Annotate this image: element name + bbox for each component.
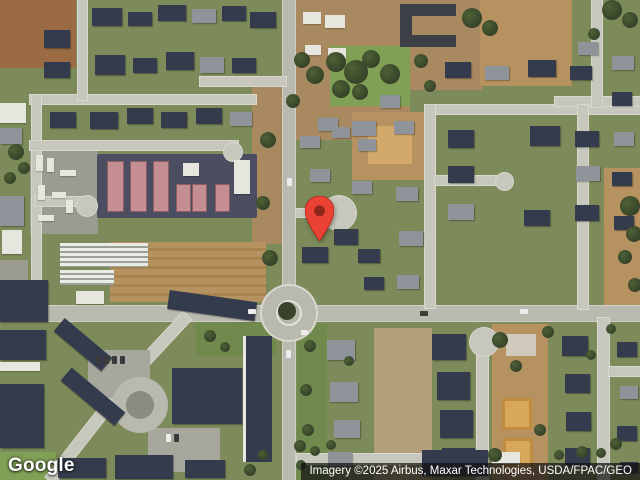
house-gray-roof [614,132,634,146]
tree [260,132,276,148]
house-dark-roof [364,277,384,290]
house-dark-roof [530,126,560,146]
location-marker-pin[interactable] [305,196,334,241]
tree [302,424,314,436]
white-building [38,215,54,221]
house-dark-roof [196,108,222,124]
house-gray-roof [620,386,638,399]
house-dark-roof [0,384,44,448]
white-building [47,158,54,172]
house-gray-roof [612,56,634,70]
tree [256,196,270,210]
car [248,309,256,314]
tree [482,20,498,36]
tree [588,28,600,40]
cul-de-sac [224,143,242,161]
white-building [76,291,104,304]
house-dark-roof [575,131,599,147]
house-gray-roof [394,121,414,134]
car [420,311,428,316]
tree [244,464,256,476]
white-building [66,200,73,213]
tree [492,332,508,348]
tree [352,84,368,100]
street [200,77,286,86]
tree [576,446,588,458]
tree [618,250,632,264]
storage-building [108,162,123,211]
house-dark-roof [445,62,471,78]
house-dark-roof [358,249,380,263]
house-dark-roof [44,62,70,78]
house-dark-roof [133,58,157,73]
white-building [0,103,26,123]
house-dark-roof [222,6,246,21]
tree [4,172,16,184]
tree [462,8,482,28]
white-building [325,15,345,28]
house-dark-roof [0,330,46,360]
tree [586,350,596,360]
house-dark-roof [172,368,242,424]
tree [18,162,30,174]
house-dark-roof [575,205,599,221]
car [104,356,109,364]
house-gray-roof [448,204,474,220]
concrete-foundation [506,334,536,356]
tree [262,250,278,266]
house-dark-roof [158,5,186,21]
street [425,105,435,308]
storage-building [177,185,190,211]
white-building [234,160,250,194]
house-gray-roof [358,139,376,151]
house-gray-roof [0,128,22,144]
tree [326,52,346,72]
house-gray-roof [332,127,350,138]
white-building [60,170,76,176]
house-dark-roof [115,455,173,479]
tree [344,356,354,366]
tree [628,278,640,292]
tree [310,446,320,456]
house-dark-roof [302,247,328,263]
tree [620,196,640,216]
car [166,434,171,442]
car [520,309,528,314]
house-gray-roof [200,57,224,73]
house-gray-roof [485,66,509,80]
house-gray-roof [380,95,400,108]
tree [362,50,380,68]
white-building [36,155,43,171]
tree [326,440,336,450]
house-dark-roof [44,30,70,48]
house-gray-roof [330,382,358,402]
house-gray-roof [397,275,419,289]
house-dark-roof [250,12,276,28]
tree [332,80,350,98]
tree [300,384,312,396]
apartment-building [243,336,272,462]
tree [414,54,428,68]
street [609,367,640,376]
house-dark-roof [232,58,256,73]
main-road [0,306,640,321]
house-dark-roof [617,342,637,357]
white-building [303,12,321,24]
house-dark-roof [90,112,118,129]
house-dark-roof [612,172,632,186]
white-building [2,230,22,254]
google-logo[interactable]: Google [8,455,75,477]
house-dark-roof [440,410,473,438]
car [286,350,291,358]
house-dark-roof [612,92,632,106]
tree [510,360,522,372]
car [174,434,179,442]
white-building [52,192,66,198]
tree [286,94,300,108]
pin-body [305,196,334,241]
greenhouse [60,270,114,285]
storage-building [154,162,168,211]
house-dark-roof [448,130,474,148]
tree [294,440,306,452]
tree [626,226,640,242]
house-dark-roof [565,374,590,393]
tree [220,342,230,352]
street [30,141,238,150]
car [120,356,125,364]
house-dark-roof [185,460,225,478]
street [78,0,87,100]
car [301,330,308,335]
house-dark-roof [448,166,474,183]
house-gray-roof [352,181,372,194]
house-dark-roof [127,108,153,124]
tree [554,450,564,460]
house-gray-roof [230,112,252,126]
house-dark-roof [166,52,194,70]
terrain-dirt-field [252,82,286,244]
tree [258,450,268,460]
roundabout-landscaping [278,302,296,320]
house-dark-roof [161,112,187,128]
main-road [283,0,295,480]
house-dark-roof [437,372,470,400]
new-asphalt-road [400,4,456,16]
cul-de-sac [77,196,97,216]
house-dark-roof [95,55,125,75]
new-asphalt-road [400,35,456,47]
house-gray-roof [396,187,418,201]
tree [488,448,502,462]
house-dark-roof [128,12,152,26]
house-dark-roof [566,412,591,431]
tree [622,12,638,28]
house-dark-roof [432,334,466,360]
house-gray-roof [578,42,598,55]
house-dark-roof [562,336,588,356]
house-dark-roof [92,8,122,26]
tree [8,144,24,160]
white-building [183,163,199,176]
house-gray-roof [576,166,600,181]
pin-dot [314,205,325,216]
house-gray-roof [0,196,24,226]
house-dark-roof [524,210,550,226]
courtyard-center [126,391,154,419]
tree [424,80,436,92]
storage-building [216,185,229,211]
car [112,356,117,364]
house-dark-roof [50,112,76,128]
tree [294,52,310,68]
white-building [38,185,45,200]
house-gray-roof [334,420,360,438]
tree [596,448,606,458]
storage-building [193,185,206,211]
tree [204,330,216,342]
house-gray-roof [310,169,330,182]
satellite-map[interactable]: Google Imagery ©2025 Airbus, Maxar Techn… [0,0,640,480]
car [96,356,101,364]
house-dark-roof [334,229,358,245]
tree [306,66,324,84]
street [425,105,640,114]
storage-building [131,162,146,211]
house-gray-roof [300,136,320,148]
greenhouse [60,243,148,267]
house-dark-roof [528,60,556,77]
house-gray-roof [352,121,376,136]
house-dark-roof [570,66,592,80]
house-dark-roof [0,280,48,322]
map-attribution: Imagery ©2025 Airbus, Maxar Technologies… [301,463,640,480]
white-building [0,362,40,371]
tree [304,340,316,352]
house-gray-roof [399,231,423,246]
street [30,95,256,104]
tree [610,438,622,450]
car [287,178,292,186]
tree [606,324,616,334]
cul-de-sac [496,173,513,190]
tree [380,64,400,84]
tree [534,424,546,436]
house-gray-roof [192,9,216,23]
tree [602,0,622,20]
construction-framing [502,398,532,430]
tree [542,326,554,338]
